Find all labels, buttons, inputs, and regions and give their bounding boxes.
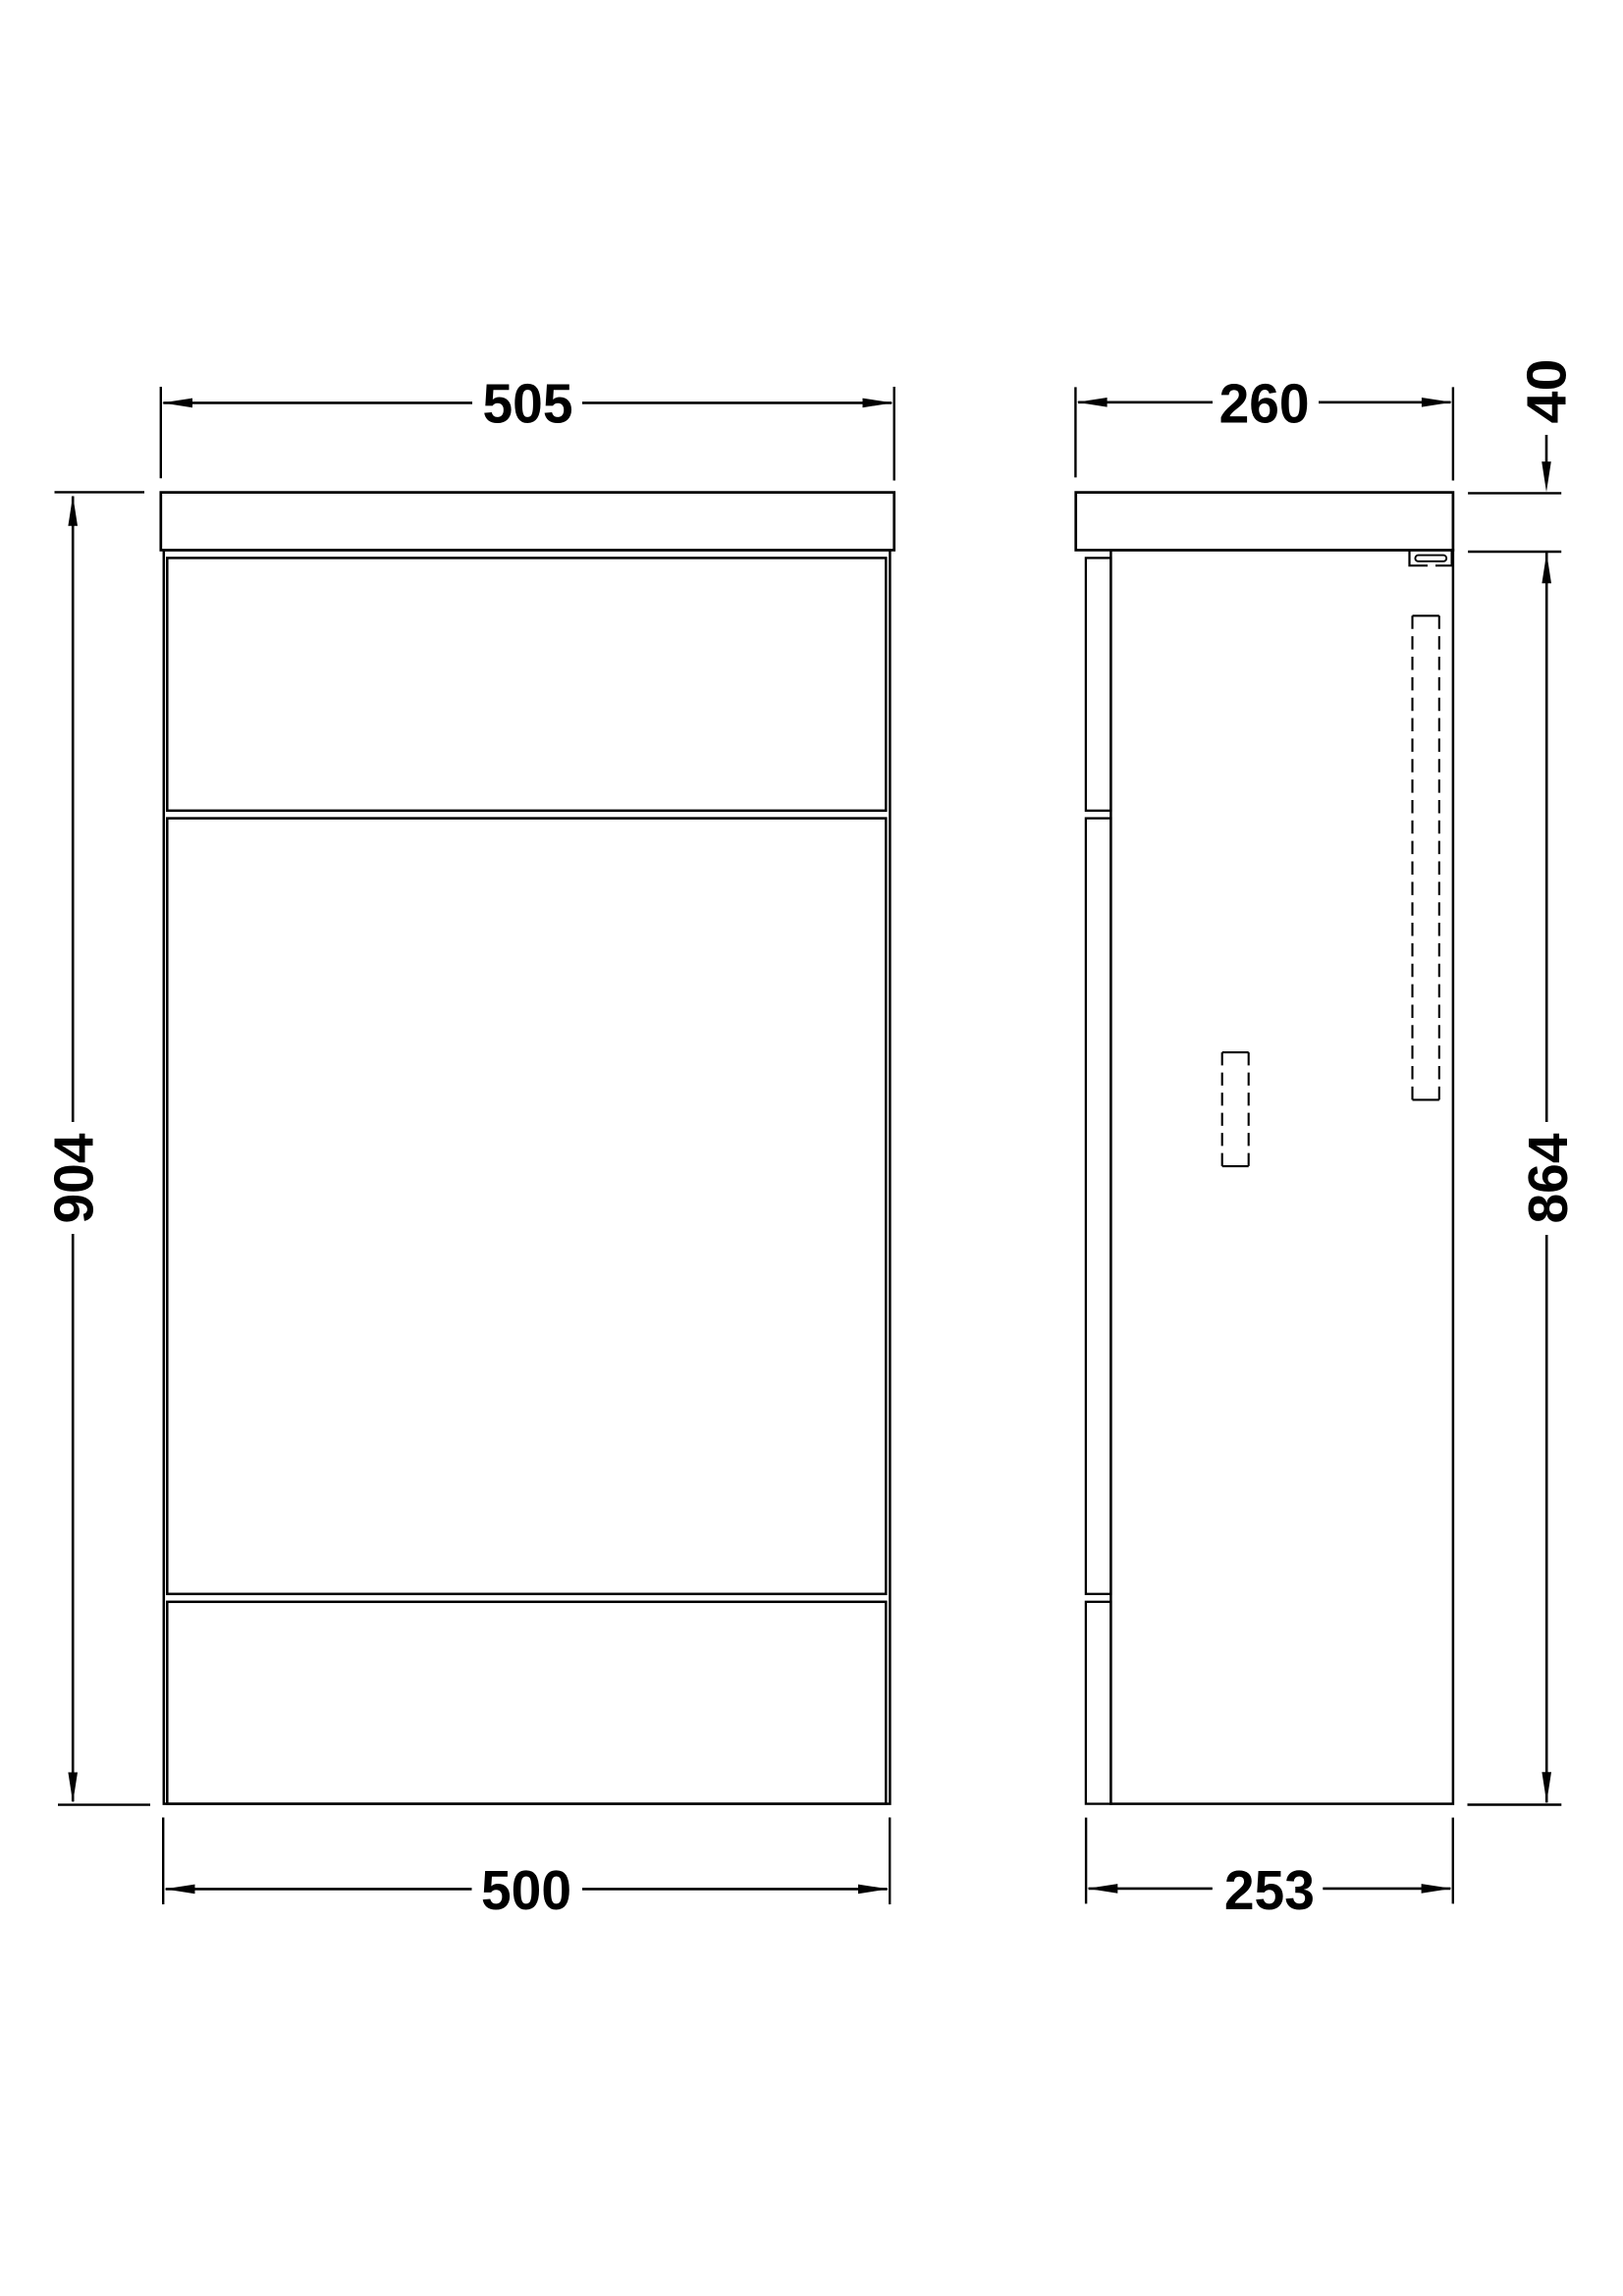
svg-text:864: 864 [1517,1133,1580,1223]
svg-text:260: 260 [1219,372,1310,435]
svg-text:40: 40 [1516,359,1579,424]
svg-text:505: 505 [483,372,573,435]
svg-text:904: 904 [43,1133,106,1223]
svg-text:500: 500 [481,1859,571,1922]
svg-text:253: 253 [1224,1859,1315,1922]
